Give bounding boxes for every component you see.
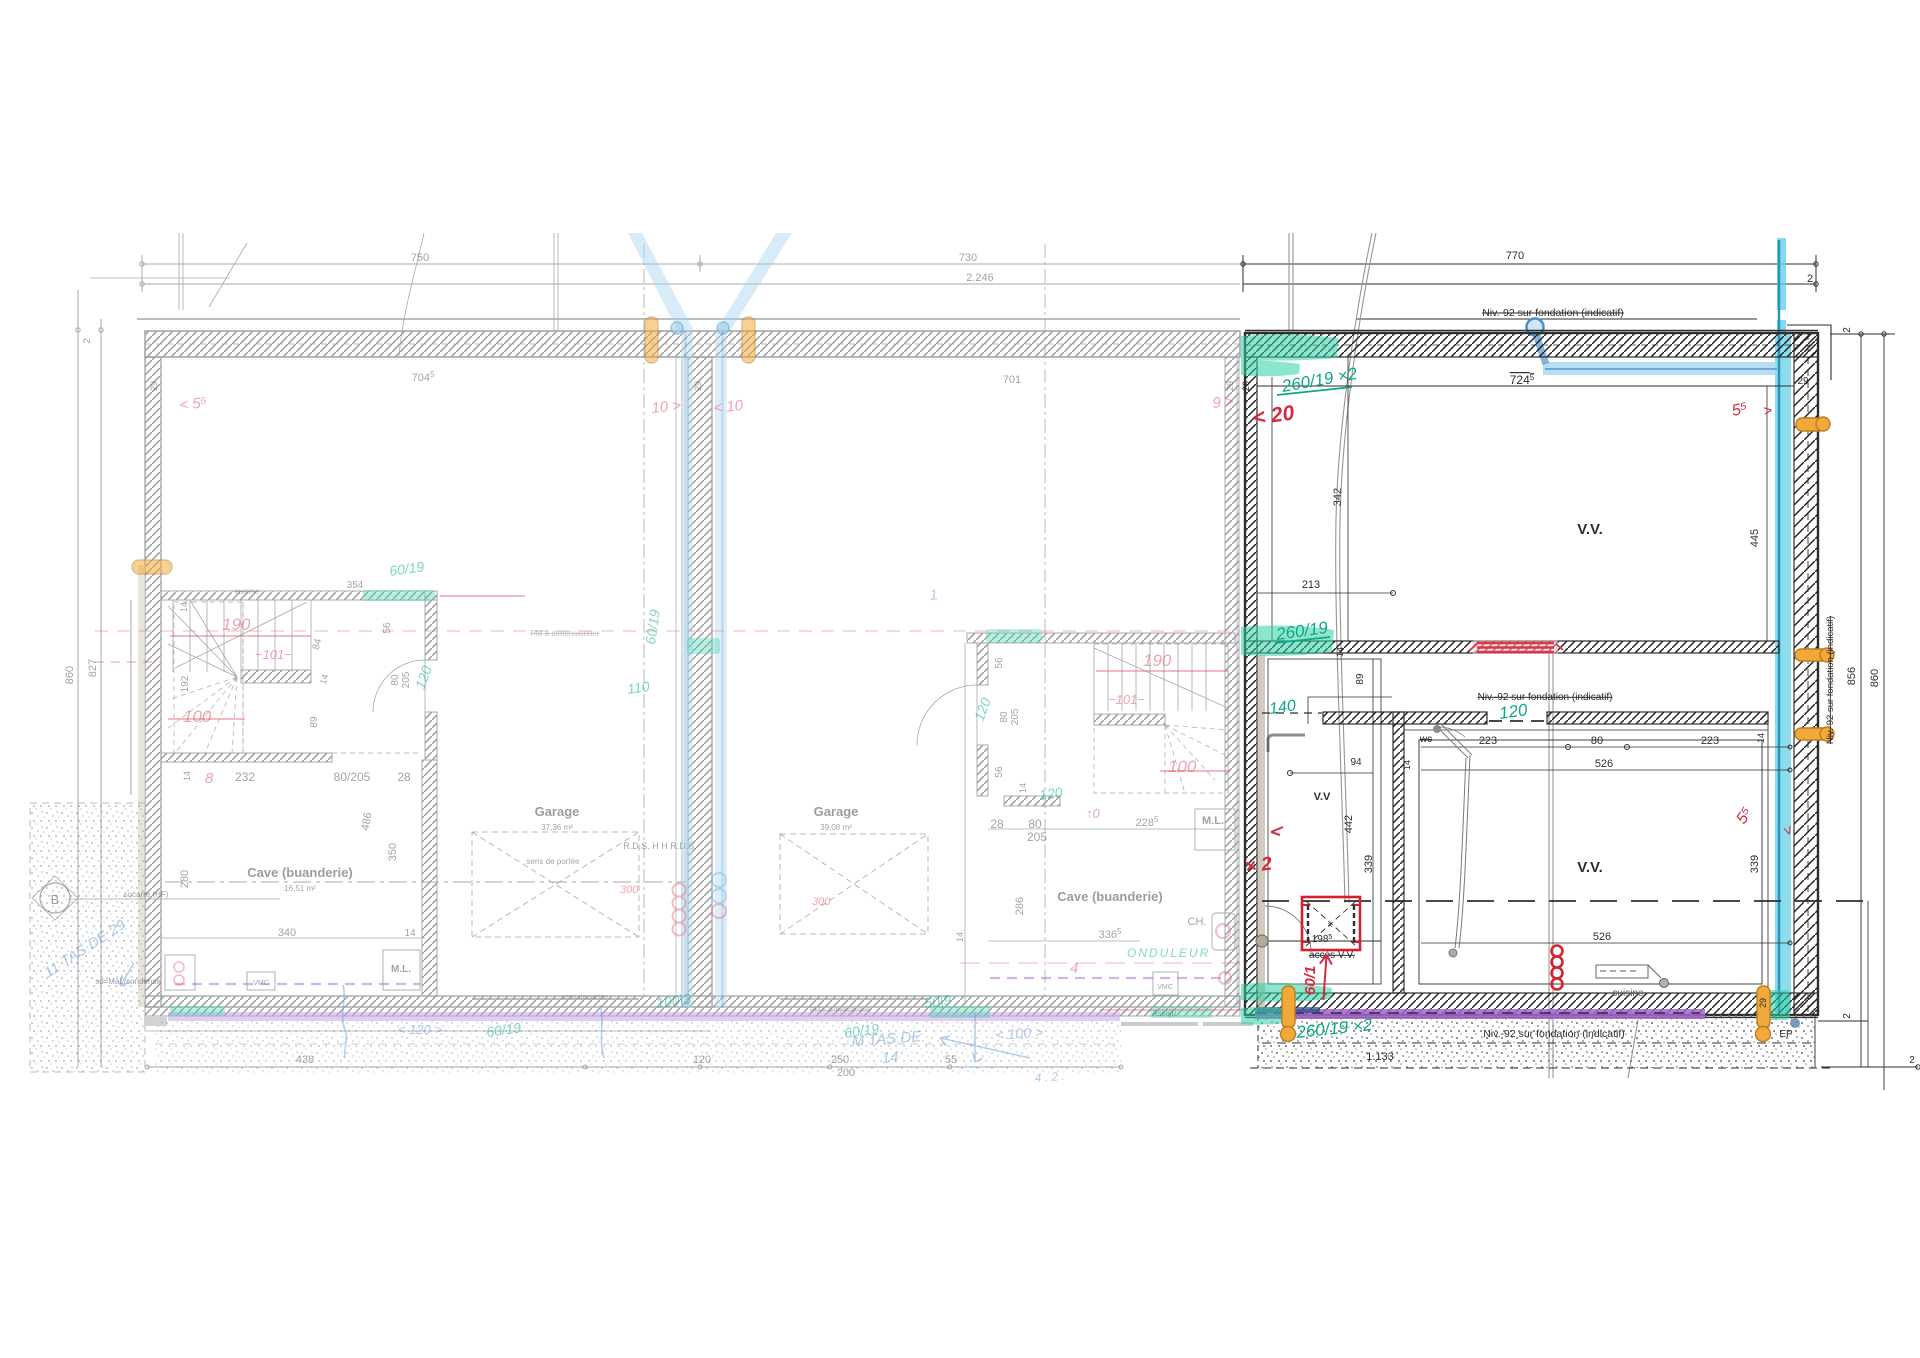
svg-text:Garage: Garage [814, 804, 859, 819]
svg-text:14: 14 [404, 928, 416, 939]
svg-text:190: 190 [222, 615, 251, 634]
svg-text:14: 14 [1335, 647, 1345, 657]
svg-text:2.246: 2.246 [966, 272, 994, 284]
svg-text:442: 442 [1343, 815, 1355, 833]
svg-text:14: 14 [1402, 760, 1412, 770]
svg-text:Niv.-92 sur fondation (indicat: Niv.-92 sur fondation (indicatif) [1825, 616, 1836, 744]
svg-text:860: 860 [64, 666, 76, 684]
svg-text:350: 350 [387, 843, 399, 861]
svg-text:110: 110 [626, 678, 651, 697]
svg-text:V.V.: V.V. [1577, 521, 1603, 538]
svg-text:× 2: × 2 [1244, 853, 1274, 878]
svg-text:14: 14 [182, 771, 192, 781]
svg-text:37,36 m²: 37,36 m² [541, 823, 573, 832]
svg-text:VMC: VMC [1157, 984, 1173, 991]
svg-text:526: 526 [1593, 931, 1611, 943]
svg-text:accès V.V.: accès V.V. [1309, 950, 1355, 961]
svg-text:−101−: −101− [1108, 692, 1145, 707]
svg-text:232: 232 [235, 770, 255, 784]
svg-text:29: 29 [1241, 381, 1251, 391]
svg-text:sens de portée: sens de portée [527, 857, 580, 866]
svg-text:120: 120 [1038, 784, 1064, 803]
svg-text:205: 205 [401, 671, 412, 688]
svg-text:2: 2 [82, 338, 93, 344]
svg-text:205: 205 [1010, 708, 1021, 725]
svg-text:120: 120 [1498, 700, 1529, 723]
svg-text:701: 701 [1003, 374, 1021, 386]
svg-text:80: 80 [1591, 735, 1603, 747]
svg-text:−101−: −101− [255, 647, 292, 662]
svg-text:2: 2 [1842, 327, 1853, 333]
svg-text:wc: wc [1419, 734, 1432, 745]
svg-text:526: 526 [1595, 758, 1613, 770]
svg-text:˂ 120 ˃: ˂ 120 ˃ [398, 1022, 443, 1037]
svg-text:100: 100 [183, 707, 212, 726]
svg-text:770: 770 [1506, 250, 1524, 262]
svg-text:M.L.: M.L. [1202, 815, 1224, 827]
svg-text:29: 29 [149, 381, 159, 391]
svg-text:V.V: V.V [1314, 791, 1331, 803]
svg-text:89: 89 [309, 716, 320, 728]
svg-text:286: 286 [1014, 897, 1026, 915]
svg-text:˂ 5⁵: ˂ 5⁵ [179, 394, 208, 414]
svg-text:↑0: ↑0 [1086, 806, 1101, 821]
svg-text:sens de portée: sens de portée [562, 994, 608, 1001]
svg-text:socarre (HF): socarre (HF) [124, 890, 169, 899]
svg-text:M.L.: M.L. [391, 964, 411, 975]
svg-text:94: 94 [1350, 757, 1362, 768]
svg-text:342: 342 [1332, 488, 1344, 506]
svg-text:29: 29 [693, 381, 703, 391]
svg-text:14: 14 [881, 1049, 899, 1067]
svg-text:250: 250 [831, 1054, 849, 1066]
svg-text:213: 213 [1302, 579, 1320, 591]
svg-text:223: 223 [1479, 735, 1497, 747]
svg-text:192: 192 [180, 675, 191, 692]
svg-text:1.133: 1.133 [1366, 1051, 1394, 1063]
svg-text:80: 80 [390, 674, 401, 686]
svg-text:354: 354 [347, 580, 364, 591]
svg-text:29: 29 [1758, 998, 1768, 1008]
svg-text:300: 300 [620, 884, 639, 896]
svg-text:730: 730 [959, 252, 977, 264]
svg-text:223: 223 [1701, 735, 1719, 747]
svg-text:V.V.: V.V. [1577, 859, 1603, 876]
svg-text:ONDULEUR: ONDULEUR [1127, 946, 1210, 960]
svg-text:1: 1 [929, 586, 939, 604]
svg-text:60/1: 60/1 [1302, 966, 1319, 995]
svg-text:29: 29 [1797, 376, 1809, 387]
svg-text:80: 80 [1028, 817, 1042, 831]
svg-text:438: 438 [296, 1054, 314, 1066]
svg-text:Cave (buanderie): Cave (buanderie) [247, 865, 352, 880]
svg-text:80: 80 [999, 711, 1010, 723]
svg-text:339: 339 [1749, 855, 1761, 873]
svg-text:14: 14 [955, 932, 965, 942]
svg-text:CH.: CH. [1188, 916, 1207, 928]
svg-text:˂ 10: ˂ 10 [713, 397, 745, 417]
svg-text:200: 200 [837, 1067, 855, 1079]
svg-text:14: 14 [179, 602, 189, 612]
svg-text:4: 4 [1070, 960, 1078, 977]
svg-text:56: 56 [382, 622, 393, 634]
svg-text:8: 8 [205, 770, 214, 787]
svg-text:˂ 100 ˃: ˂ 100 ˃ [995, 1024, 1044, 1043]
svg-text:Garage: Garage [535, 804, 580, 819]
svg-text:339: 339 [1363, 855, 1375, 873]
svg-text:PM à dimensionner: PM à dimensionner [531, 629, 600, 638]
svg-text:sd=MàL/condensa: sd=MàL/condensa [95, 977, 161, 986]
svg-text:80/205: 80/205 [334, 770, 371, 784]
svg-text:29: 29 [1225, 381, 1235, 391]
svg-text:28: 28 [990, 817, 1004, 831]
svg-text:280: 280 [179, 870, 191, 888]
svg-text:55: 55 [945, 1054, 957, 1066]
svg-text:4 . 2 .: 4 . 2 . [1034, 1069, 1065, 1085]
svg-text:56: 56 [994, 766, 1005, 778]
svg-text:10 ˃: 10 ˃ [651, 397, 682, 417]
svg-text:Asseju: Asseju [1151, 1009, 1177, 1018]
svg-text:750: 750 [411, 252, 429, 264]
svg-text:14: 14 [1018, 783, 1028, 793]
svg-text:340: 340 [278, 927, 296, 939]
svg-text:860: 860 [1869, 669, 1881, 687]
svg-text:205: 205 [1027, 830, 1047, 844]
svg-text:445: 445 [1749, 529, 1761, 547]
svg-text:56: 56 [994, 657, 1005, 669]
svg-text:Niv.-92 sur fondation (indicat: Niv.-92 sur fondation (indicatif) [1478, 692, 1613, 703]
svg-text:2: 2 [1807, 273, 1813, 285]
svg-text:120: 120 [693, 1054, 711, 1066]
svg-text:16,51 m²: 16,51 m² [284, 884, 316, 893]
svg-text:×: × [1327, 920, 1332, 930]
svg-text:cuisine: cuisine [1612, 988, 1644, 999]
svg-text:14: 14 [1756, 733, 1766, 743]
svg-text:28: 28 [397, 770, 411, 784]
svg-text:EP: EP [1779, 1029, 1793, 1040]
svg-text:Cave (buanderie): Cave (buanderie) [1057, 889, 1162, 904]
svg-text:190: 190 [1143, 651, 1172, 670]
svg-text:89: 89 [1355, 673, 1366, 685]
svg-text:100: 100 [1168, 757, 1197, 776]
svg-text:856: 856 [1846, 667, 1858, 685]
svg-text:B: B [51, 892, 60, 907]
svg-text:cuisine: cuisine [235, 587, 260, 596]
svg-text:39,08 m²: 39,08 m² [820, 823, 852, 832]
svg-text:9 ˃: 9 ˃ [1212, 393, 1235, 412]
svg-text:Niv.-92 sur fondation (indicat: Niv.-92 sur fondation (indicatif) [1482, 307, 1624, 319]
svg-text:300: 300 [812, 896, 831, 908]
svg-text:2: 2 [1909, 1055, 1915, 1066]
svg-text:2: 2 [1842, 1013, 1853, 1019]
svg-text:Niv.-92 sur fondation (indicat: Niv.-92 sur fondation (indicatif) [1483, 1028, 1625, 1040]
